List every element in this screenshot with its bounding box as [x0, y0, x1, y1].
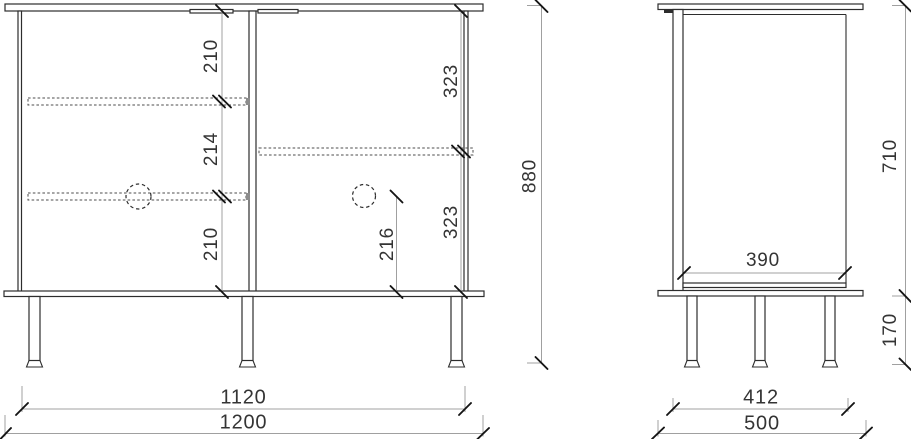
dim-label-inner-width: 1120 — [220, 386, 266, 408]
dim-label-leg-span: 412 — [743, 386, 779, 408]
side-leg-middle — [755, 296, 765, 361]
dim-label-body-height: 710 — [880, 139, 901, 173]
front-left-lower-shelf-hidden — [28, 193, 246, 200]
dim-label-overall-width: 1200 — [220, 411, 268, 433]
side-leg-back — [825, 296, 835, 361]
dim-label-overall-depth: 500 — [744, 412, 780, 434]
front-foot-middle — [240, 361, 256, 368]
front-bottom-panel — [4, 291, 484, 297]
front-center-divider — [249, 11, 256, 292]
front-foot-right — [449, 361, 465, 368]
dim-label-shelf-gap-top: 210 — [201, 39, 222, 73]
shelf-end-cap — [246, 98, 250, 105]
side-top-panel — [658, 4, 863, 10]
dim-label-door-top: 323 — [441, 64, 462, 98]
front-right-door-top-edge — [258, 10, 298, 14]
shelf-end-cap — [246, 193, 250, 200]
right-door-knob-circle — [353, 185, 376, 208]
dim-label-knob-height: 216 — [377, 227, 398, 261]
side-leg-front — [687, 296, 697, 361]
technical-drawing-page: 210 214 210 323 323 216 880 1120 — [0, 0, 911, 439]
dim-label-shelf-gap-bottom: 210 — [201, 227, 222, 261]
side-view: 390 710 170 412 500 — [652, 0, 911, 439]
cabinet-drawing-canvas: 210 214 210 323 323 216 880 1120 — [0, 0, 911, 439]
front-leg-right — [451, 297, 462, 361]
front-right-shelf-hidden — [259, 148, 473, 155]
dim-label-inner-depth: 390 — [746, 250, 780, 271]
front-view: 210 214 210 323 323 216 880 1120 — [0, 0, 548, 439]
front-foot-left — [27, 361, 43, 368]
front-leg-middle — [242, 297, 253, 361]
dim-label-leg-height: 170 — [880, 313, 901, 347]
dim-label-overall-height: 880 — [520, 159, 541, 193]
dim-label-shelf-gap-middle: 214 — [201, 132, 222, 166]
front-leg-left — [29, 297, 40, 361]
side-bottom-panel — [658, 291, 863, 297]
front-left-door-top-edge — [190, 10, 233, 14]
side-foot-back — [823, 361, 838, 368]
dim-label-door-bottom: 323 — [441, 205, 462, 239]
side-foot-middle — [753, 361, 768, 368]
front-top-panel — [5, 4, 483, 11]
front-left-upper-shelf-hidden — [28, 98, 246, 105]
side-back-panel — [673, 10, 683, 292]
front-left-side-panel — [18, 11, 22, 292]
side-foot-front — [685, 361, 700, 368]
left-door-knob-circle — [126, 184, 151, 209]
side-carcass-bottom-shelf — [683, 283, 846, 288]
